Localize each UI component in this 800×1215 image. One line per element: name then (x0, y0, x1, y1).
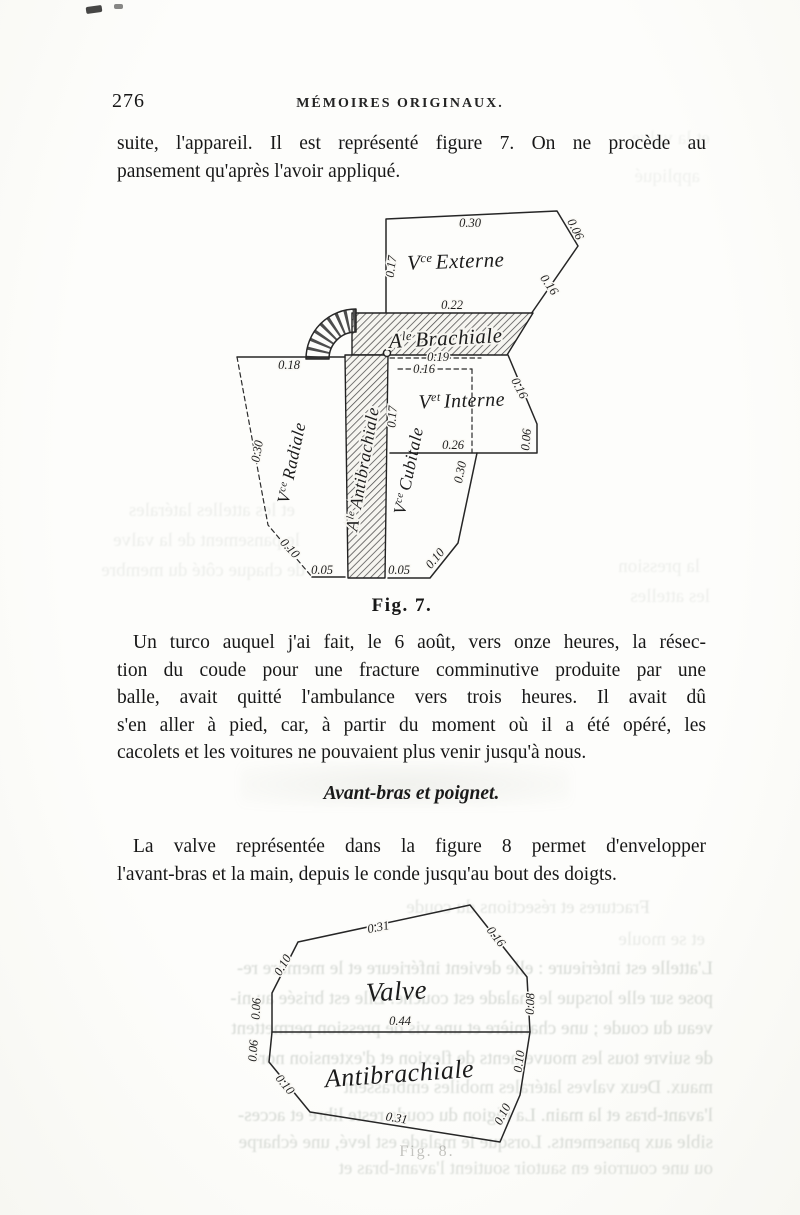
dim-label: 0.30 (459, 216, 482, 230)
label-antibrachiale: Antibrachiale (322, 1054, 475, 1093)
dim-label: 0.05 (388, 563, 410, 577)
turco-paragraph: Un turco auquel j'ai fait, le 6 août, ve… (117, 629, 706, 767)
text-line: Un turco auquel j'ai fait, le 6 août, ve… (117, 629, 706, 657)
dim-label: 0.10 (511, 1049, 528, 1073)
text-line: balle, avait quitté l'ambulance vers tro… (117, 684, 706, 712)
dim-label: 0.44 (389, 1014, 411, 1028)
label-valve-cubitale: VceCubitale (389, 425, 427, 516)
dim-label: 0.16 (413, 362, 436, 376)
text-line: cacolets et les voitures ne pouvaient pl… (117, 739, 706, 767)
text-line: pansement qu'après l'avoir appliqué. (117, 158, 706, 186)
text-line: s'en aller à pied, car, à partir du mome… (117, 712, 706, 740)
scan-speck (114, 4, 123, 9)
dim-label: 0.18 (278, 358, 301, 372)
label-valve-externe: VceExterne (407, 247, 505, 274)
dim-label: 0.22 (441, 298, 463, 312)
scanned-page: Fractures et résections du coude et se m… (0, 0, 800, 1215)
text-line: La valve représentée dans la figure 8 pe… (117, 833, 706, 861)
text-line: l'avant-bras et la main, depuis le conde… (117, 861, 706, 889)
dim-label: 0.06 (518, 427, 534, 451)
dim-label: 0.08 (523, 992, 538, 1015)
dim-label: 0.30 (451, 459, 469, 484)
dim-label: 0.06 (245, 1039, 261, 1063)
label-valve-radiale: VceRadiale (273, 420, 310, 505)
dim-label: 0.17 (383, 254, 400, 278)
dim-label: 0.30 (248, 439, 266, 464)
running-header: MÉMOIRES ORIGINAUX. (0, 96, 800, 112)
dim-label: 0.10 (273, 1072, 298, 1098)
section-heading: Avant-bras et poignet. (117, 783, 706, 805)
label-valve-interne: VetInterne (418, 387, 505, 413)
dim-label: 0.10 (423, 545, 448, 571)
scan-speck (86, 5, 103, 14)
text-line: tion du coude pour une fracture comminut… (117, 657, 706, 685)
intro-paragraph: suite, l'appareil. Il est représenté fig… (117, 130, 706, 185)
radiale-dashed-edge (237, 357, 312, 577)
figure7-caption: Fig. 7. (372, 595, 433, 616)
dim-label: 0.31 (366, 918, 390, 936)
dim-label: 0.10 (277, 535, 303, 561)
label-valve: Valve (365, 974, 427, 1007)
text-line: suite, l'appareil. Il est représenté fig… (117, 130, 706, 158)
dim-label: 0.16 (508, 375, 531, 402)
valve-outline (272, 905, 530, 1032)
figure8-diagram: Valve Antibrachiale 0.31 0.16 0.10 0.06 … (245, 893, 575, 1165)
dim-label: 0.17 (384, 405, 400, 429)
dim-label: 0.10 (491, 1101, 514, 1128)
dim-label: 0.26 (442, 438, 465, 452)
dim-label: 0.05 (311, 563, 333, 577)
figure7-diagram: VceExterne AleBrachiale VetInterne VceRa… (225, 203, 585, 623)
figure8-caption: Fig. 8. (399, 1143, 454, 1160)
dim-label: 0.06 (248, 997, 263, 1020)
valve-paragraph: La valve représentée dans la figure 8 pe… (117, 833, 706, 888)
